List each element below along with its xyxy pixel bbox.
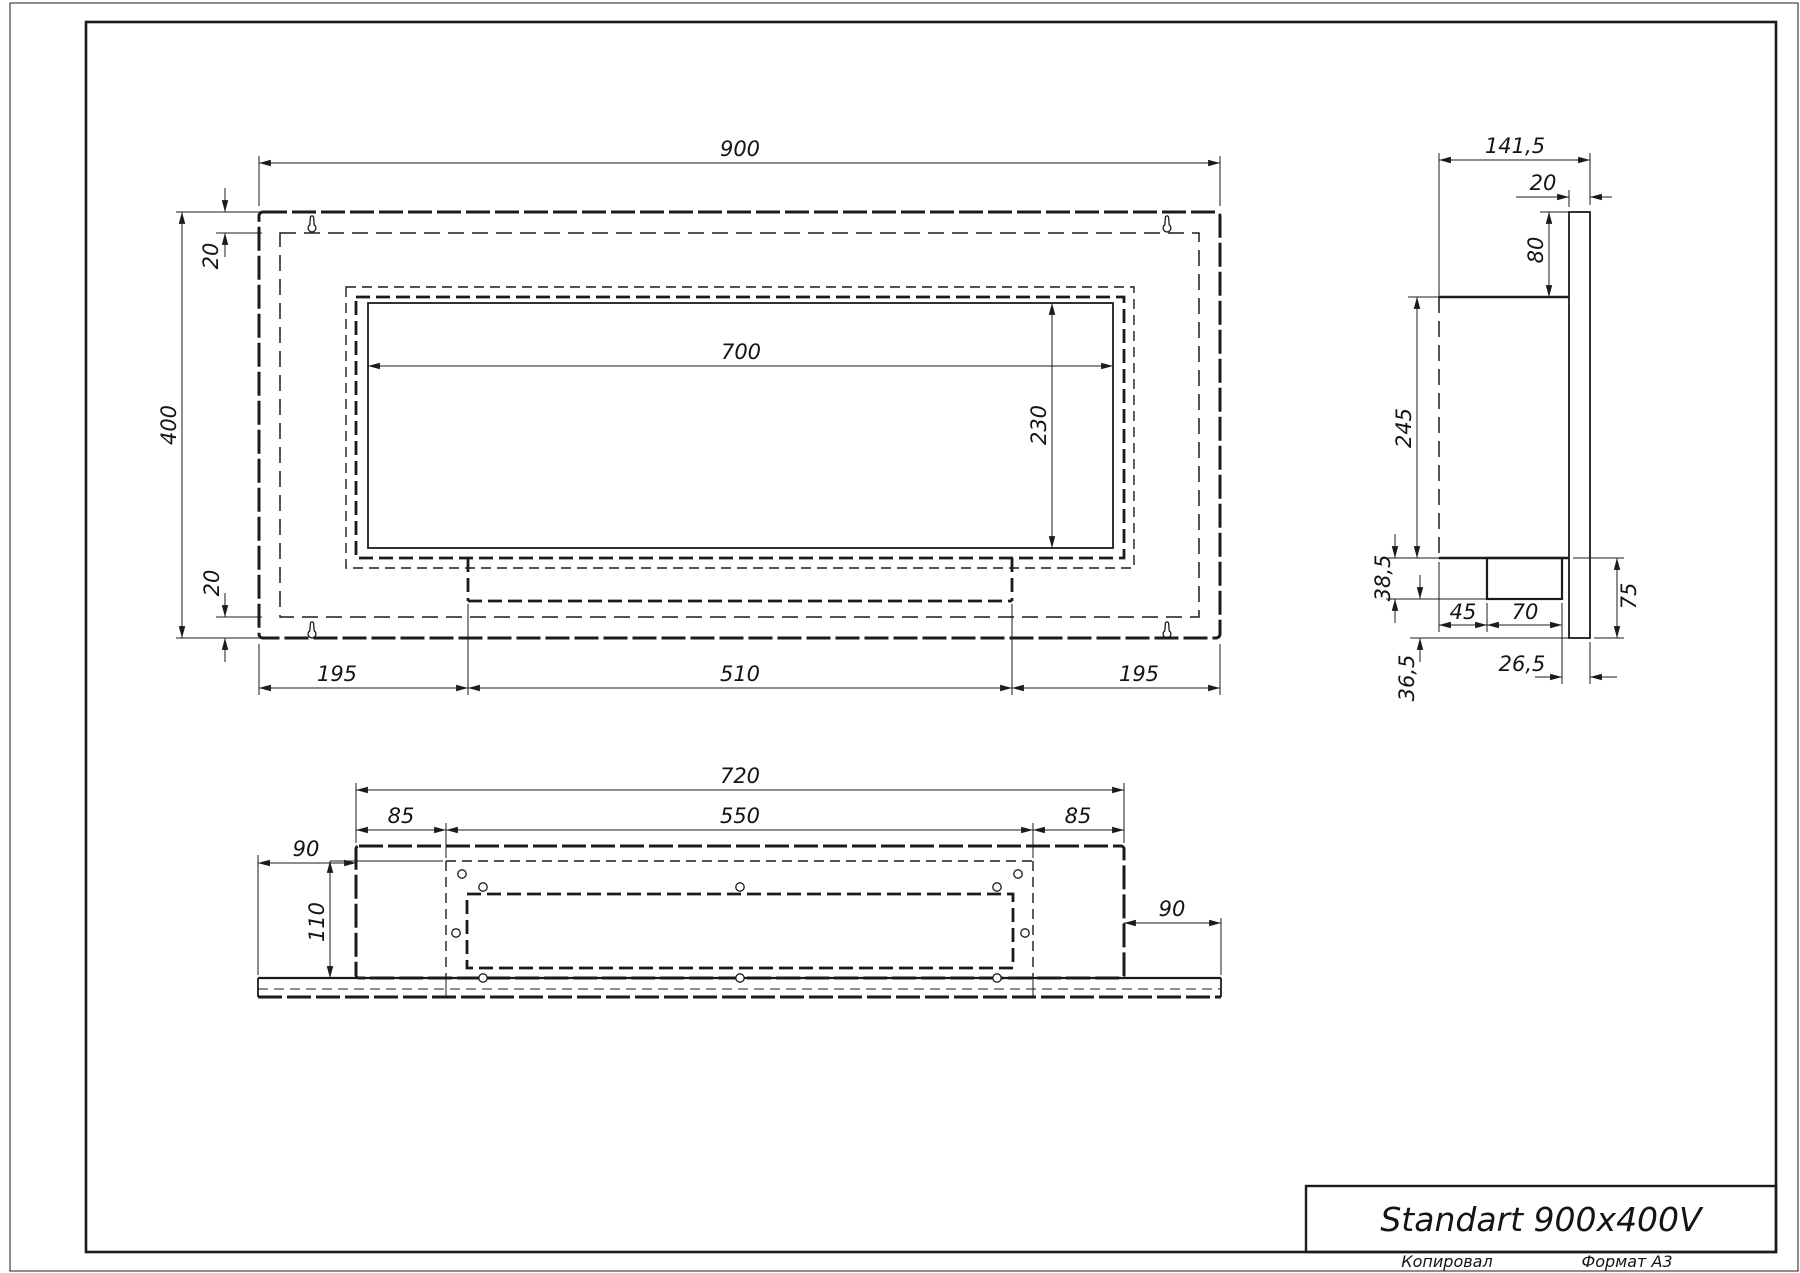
side-front-flange — [1569, 212, 1590, 638]
dim-side-tray-bottom-to-flange: 36,5 — [1395, 655, 1419, 702]
dim-side-flange-thickness: 20 — [1530, 171, 1557, 195]
dim-front-overall-width: 900 — [720, 137, 760, 161]
dim-front-opening-height: 230 — [1027, 405, 1051, 445]
dim-side-body-height: 245 — [1392, 408, 1416, 448]
front-outer-outline — [259, 212, 1220, 638]
dim-bottom-overhang-right: 90 — [1159, 897, 1186, 921]
keyhole-slot-icon — [308, 622, 316, 638]
dim-side-tray-to-front: 26,5 — [1499, 652, 1546, 676]
dim-bottom-margin-left: 85 — [388, 804, 415, 828]
dim-side-flange-below-body: 75 — [1617, 583, 1641, 610]
dim-front-bottom-center: 510 — [720, 662, 760, 686]
dim-front-overall-height: 400 — [157, 405, 181, 445]
front-view: 900 400 20 20 700 230 195 510 195 — [157, 137, 1220, 695]
dim-front-bottom-right: 195 — [1119, 662, 1159, 686]
dim-bottom-opening-width: 550 — [720, 804, 760, 828]
title-block-title: Standart 900x400V — [1380, 1200, 1704, 1239]
dim-side-overall-depth: 141,5 — [1485, 134, 1545, 158]
keyhole-slot-icon — [1163, 216, 1171, 232]
footer-copied-label: Копировал — [1401, 1252, 1492, 1271]
dim-bottom-margin-right: 85 — [1065, 804, 1092, 828]
dim-side-tray-depth: 70 — [1512, 600, 1539, 624]
dim-side-flange-top-to-body: 80 — [1524, 237, 1548, 264]
side-burner-tray — [1487, 558, 1562, 599]
dim-front-bottom-left: 195 — [317, 662, 357, 686]
front-dimension-lines — [182, 163, 1220, 688]
dim-bottom-overhang-left: 90 — [293, 837, 320, 861]
front-insulation-hidden — [346, 287, 1134, 568]
dim-front-opening-width: 700 — [721, 340, 761, 364]
dim-front-bottom-offset: 20 — [200, 570, 224, 597]
footer-format-label: Формат А3 — [1581, 1252, 1672, 1271]
title-block: Standart 900x400V — [1306, 1186, 1776, 1252]
sheet-footer: Копировал Формат А3 — [1401, 1252, 1672, 1271]
dim-side-back-to-tray: 45 — [1450, 600, 1477, 624]
front-extension-lines — [176, 156, 1220, 695]
front-burner-tray-hidden — [468, 558, 1012, 601]
front-firebox-hidden — [356, 297, 1124, 558]
side-view: 141,5 20 80 245 38,5 36,5 45 70 26,5 75 — [1371, 134, 1641, 701]
keyhole-slot-icon — [1163, 622, 1171, 638]
bottom-burner-tray-hidden — [467, 894, 1013, 968]
keyhole-slot-icon — [308, 216, 316, 232]
dim-bottom-body-width: 720 — [720, 764, 760, 788]
drawing-sheet: 900 400 20 20 700 230 195 510 195 — [0, 0, 1800, 1273]
dim-side-tray-height: 38,5 — [1371, 555, 1395, 602]
bottom-opening-hidden — [446, 861, 1033, 978]
bottom-view: 720 550 85 85 90 110 90 — [258, 764, 1221, 997]
side-extension-lines — [1386, 153, 1624, 684]
dim-front-top-offset: 20 — [199, 243, 223, 270]
technical-drawing: 900 400 20 20 700 230 195 510 195 — [0, 0, 1800, 1273]
bottom-mounting-holes — [452, 870, 1029, 982]
bottom-body-outline — [356, 846, 1124, 978]
dim-bottom-opening-depth: 110 — [305, 902, 329, 942]
